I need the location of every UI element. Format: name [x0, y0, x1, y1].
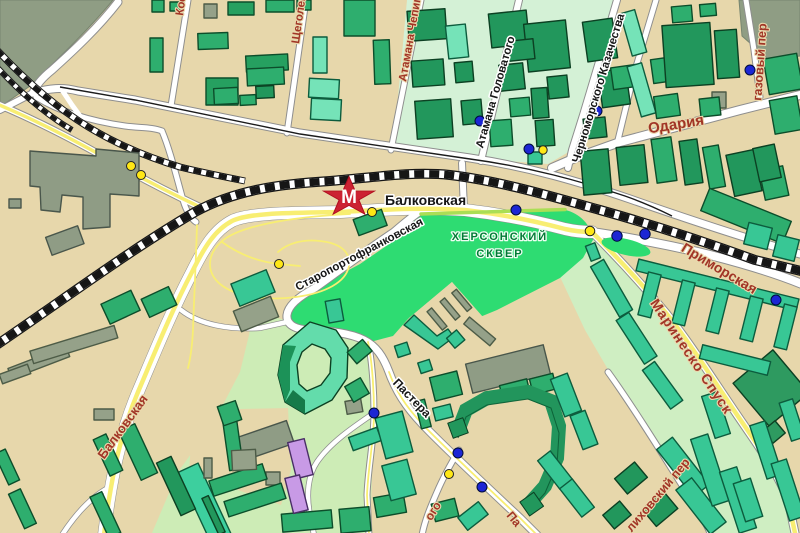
svg-text:Балковская: Балковская: [385, 192, 466, 208]
svg-text:ХЕРСОНСКИЙ: ХЕРСОНСКИЙ: [452, 230, 548, 243]
svg-text:М: М: [341, 187, 357, 208]
svg-text:СКВЕР: СКВЕР: [476, 248, 523, 260]
